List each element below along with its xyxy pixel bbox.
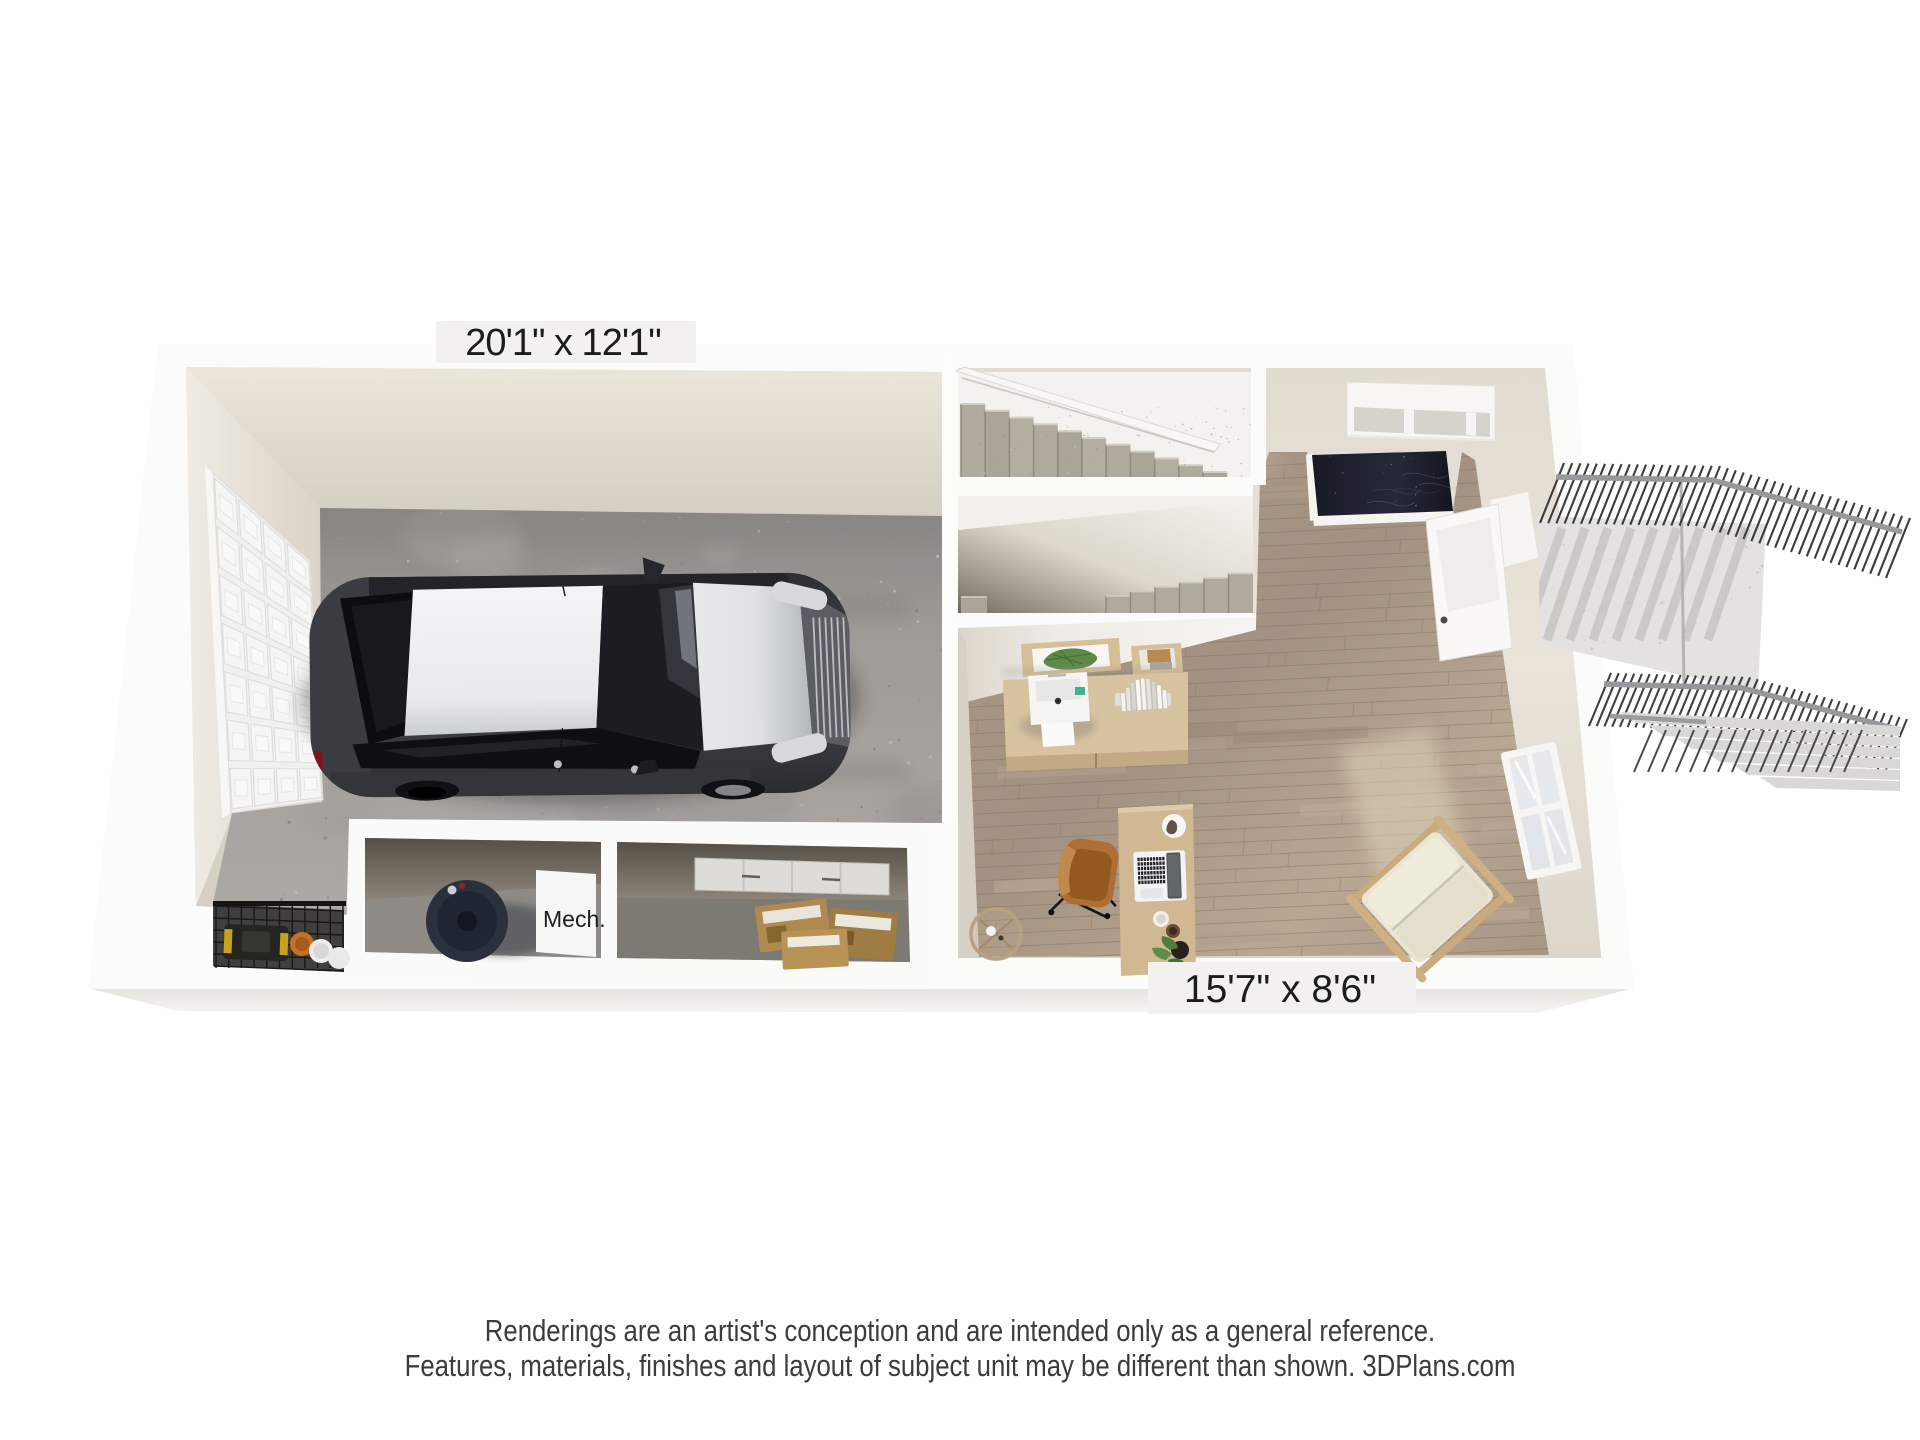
- svg-text:15'7" x 8'6": 15'7" x 8'6": [1184, 968, 1376, 1011]
- svg-text:Mech.: Mech.: [543, 906, 606, 932]
- svg-text:20'1" x 12'1": 20'1" x 12'1": [465, 322, 660, 364]
